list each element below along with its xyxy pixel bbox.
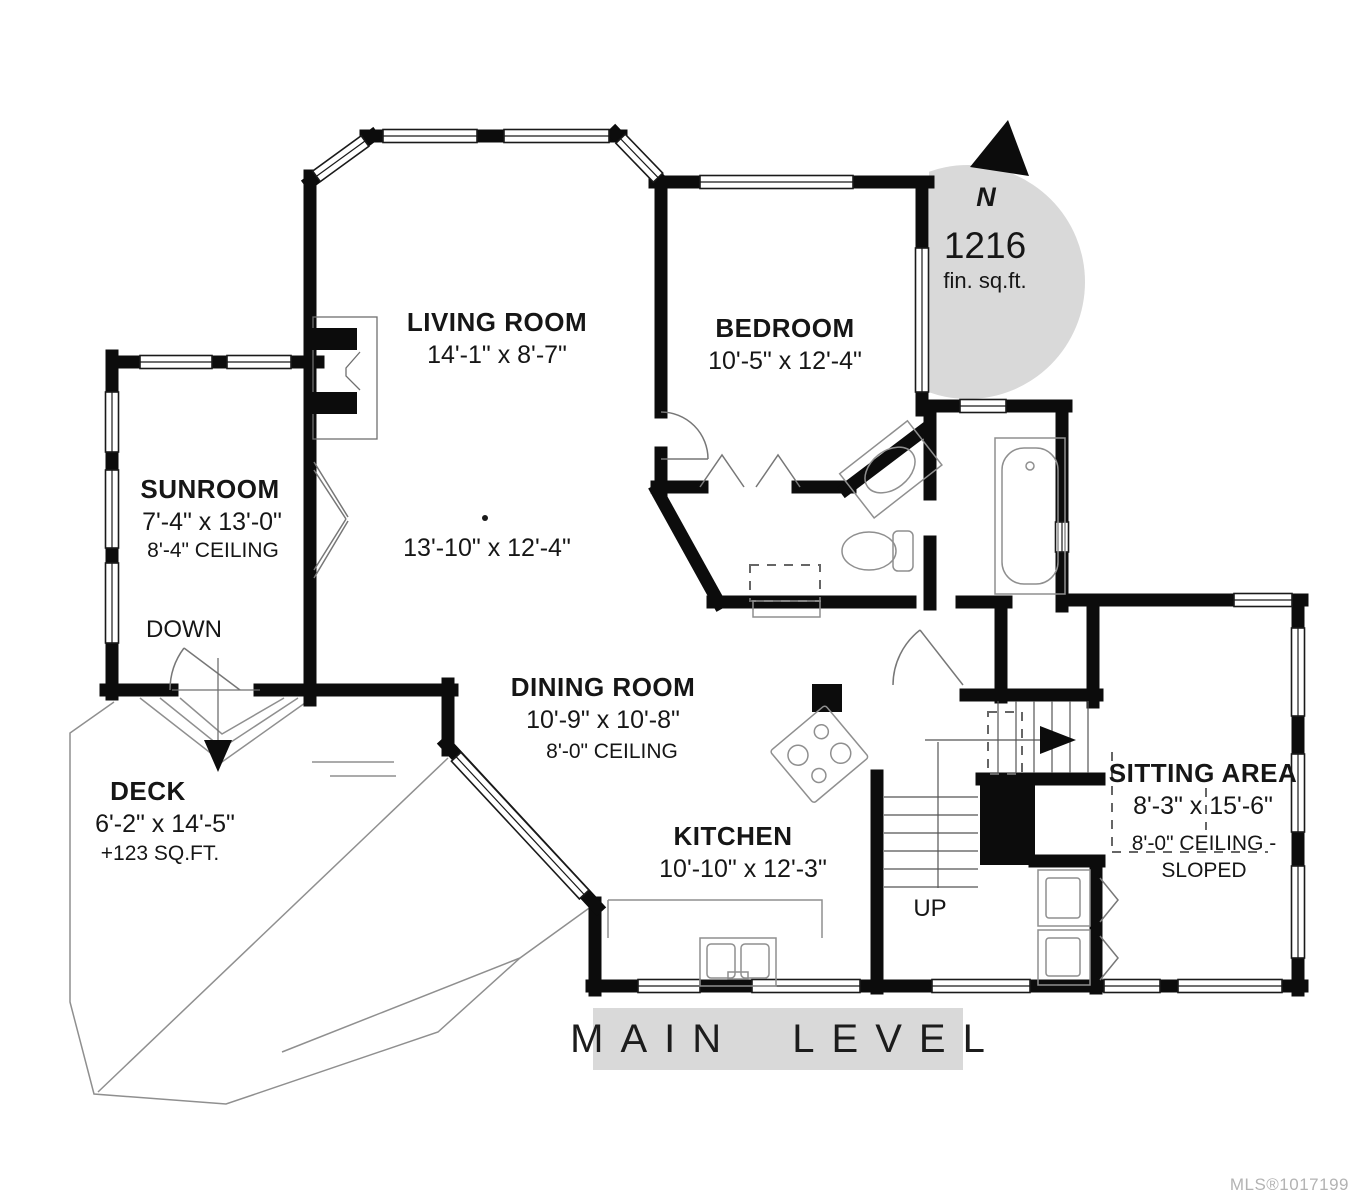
bedroom-dims: 10'-5" x 12'-4" xyxy=(708,347,862,375)
down-arrow xyxy=(204,658,232,772)
window xyxy=(932,980,1030,993)
window xyxy=(616,134,663,182)
stair-dashed-outline xyxy=(988,712,1022,774)
window xyxy=(960,400,1006,413)
french-doors xyxy=(314,462,348,578)
door-arc xyxy=(170,648,240,690)
bath-cabinet xyxy=(750,565,820,617)
deck-dims: 6'-2" x 14'-5" xyxy=(95,810,235,838)
north-label: N xyxy=(976,182,996,212)
bathtub xyxy=(995,438,1065,594)
window xyxy=(1292,866,1305,958)
sunroom-label: SUNROOM xyxy=(140,474,279,504)
stairs-upper-flight xyxy=(925,701,1088,774)
sitting-area-label: SITTING AREA xyxy=(1109,758,1297,788)
dining-room-ceiling: 8'-0" CEILING xyxy=(546,740,678,763)
window xyxy=(1292,628,1305,716)
window xyxy=(313,136,369,182)
plan-dot xyxy=(482,515,488,521)
room-labels: LIVING ROOM 14'-1" x 8'-7" 13'-10" x 12'… xyxy=(95,307,1297,922)
door-arc xyxy=(893,630,963,685)
deck-extra: +123 SQ.FT. xyxy=(101,842,219,865)
area-value: 1216 xyxy=(944,225,1026,266)
window xyxy=(1178,980,1282,993)
sitting-area-dims: 8'-3" x 15'-6" xyxy=(1133,792,1273,820)
closet-bifold-doors xyxy=(700,455,800,487)
window xyxy=(227,356,291,369)
deck-label: DECK xyxy=(110,776,186,806)
window xyxy=(383,130,477,143)
main-level-banner: MAIN LEVEL xyxy=(570,1008,1002,1070)
window xyxy=(106,392,119,452)
window xyxy=(504,130,609,143)
laundry-bifold-doors xyxy=(1100,878,1118,980)
dining-room-dims: 10'-9" x 10'-8" xyxy=(526,706,680,734)
stair-landing-wall xyxy=(980,785,1035,865)
washer xyxy=(1038,870,1090,926)
bedroom-label: BEDROOM xyxy=(715,313,854,343)
north-arrow-icon xyxy=(970,120,1029,176)
window xyxy=(106,563,119,643)
door-arc xyxy=(661,412,708,459)
kitchen-label: KITCHEN xyxy=(673,821,792,851)
window xyxy=(1234,594,1292,607)
window xyxy=(140,356,212,369)
living-room-dims: 14'-1" x 8'-7" xyxy=(427,341,567,369)
living-room-label: LIVING ROOM xyxy=(407,307,587,337)
window xyxy=(700,176,853,189)
sliding-door-window xyxy=(451,752,588,899)
dryer xyxy=(1038,930,1090,985)
window xyxy=(638,980,700,993)
window xyxy=(916,248,929,392)
down-label: DOWN xyxy=(146,616,222,643)
down-arrow-icon xyxy=(204,740,232,772)
stove xyxy=(770,705,869,803)
floorplan-svg: N 1216 fin. sq.ft. xyxy=(0,0,1357,1200)
window xyxy=(106,470,119,548)
dining-room-label: DINING ROOM xyxy=(511,672,696,702)
kitchen-dims: 10'-10" x 12'-3" xyxy=(659,855,827,883)
sunroom-ceiling: 8'-4" CEILING xyxy=(147,539,279,562)
banner-label: MAIN LEVEL xyxy=(570,1017,1002,1061)
toilet xyxy=(842,531,913,571)
stairs-up-flight xyxy=(884,742,978,888)
sunroom-dims: 7'-4" x 13'-0" xyxy=(142,508,282,536)
deck-outline xyxy=(70,698,592,1104)
up-label: UP xyxy=(913,895,946,922)
sitting-area-ceiling-1: 8'-0" CEILING - xyxy=(1132,832,1277,855)
compass: N 1216 fin. sq.ft. xyxy=(851,120,1085,399)
mls-number: MLS®1017199 xyxy=(1230,1175,1349,1194)
sitting-area-ceiling-2: SLOPED xyxy=(1161,859,1246,882)
kitchen-counter xyxy=(608,900,822,938)
living-room-lower-dims: 13'-10" x 12'-4" xyxy=(403,534,571,562)
floorplan-page: N 1216 fin. sq.ft. xyxy=(0,0,1357,1200)
area-unit: fin. sq.ft. xyxy=(943,268,1026,293)
fireplace xyxy=(311,317,377,439)
window xyxy=(1104,980,1160,993)
